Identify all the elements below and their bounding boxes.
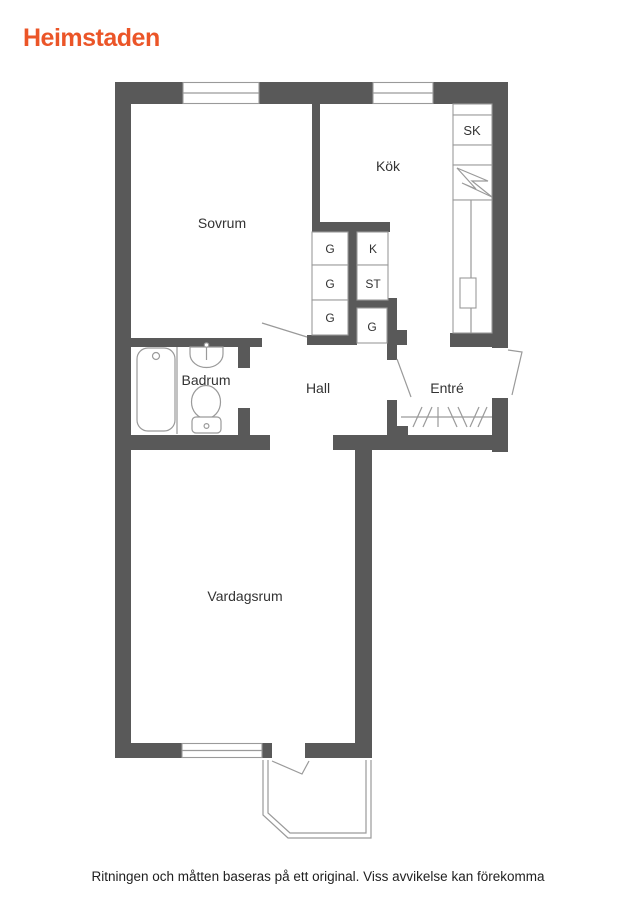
room-label-vardagsrum: Vardagsrum — [207, 588, 282, 604]
wall-top-mid — [259, 82, 373, 104]
bathroom-fixtures — [137, 343, 223, 434]
wall-gcol-bottom — [307, 335, 357, 345]
closet-label-g3: G — [325, 311, 334, 325]
window-bottom — [182, 744, 262, 758]
floor-plan: Sovrum Kök Badrum Hall Entré Vardagsrum … — [0, 0, 636, 900]
closet-label-st: ST — [365, 277, 381, 291]
wall-g4-foot — [397, 330, 407, 345]
closet-label-sk: SK — [463, 123, 481, 138]
wall-partition-foot — [387, 426, 408, 435]
wall-badrum-right-top — [238, 347, 250, 368]
toilet-button — [204, 424, 209, 429]
room-labels: Sovrum Kök Badrum Hall Entré Vardagsrum … — [181, 123, 481, 604]
kitchen-counter — [453, 104, 492, 333]
balcony-door-swing — [272, 761, 309, 774]
room-label-hall: Hall — [306, 380, 330, 396]
closet-label-g2: G — [325, 277, 334, 291]
toilet-icon — [192, 386, 222, 434]
balcony-inner-line — [268, 760, 366, 833]
wall-hall-bottom-left — [131, 435, 270, 450]
toilet-bowl — [192, 386, 221, 419]
front-door-swing — [508, 350, 522, 395]
balcony-outer-line — [263, 760, 371, 838]
room-label-entre: Entré — [430, 380, 464, 396]
entrance-hatch — [401, 407, 492, 427]
wall-hall-bottom-right — [333, 435, 508, 450]
wall-kok-bottom — [312, 222, 390, 232]
bathtub-icon — [137, 348, 175, 431]
wall-vardagsrum-bottom-left — [115, 743, 182, 758]
disclaimer-text: Ritningen och måtten baseras på ett orig… — [0, 869, 636, 884]
wall-vardagsrum-bottom-right — [305, 743, 372, 758]
wall-left — [115, 82, 131, 758]
room-label-kok: Kök — [376, 158, 401, 174]
counter-main — [453, 200, 492, 333]
room-label-badrum: Badrum — [181, 372, 230, 388]
sink-tap — [204, 343, 208, 347]
wall-entre-top — [450, 333, 492, 347]
wall-sovrum-bottom — [131, 338, 262, 347]
room-label-sovrum: Sovrum — [198, 215, 246, 231]
closet-label-k: K — [369, 242, 377, 256]
wall-vardagsrum-right — [355, 450, 372, 758]
counter-top-box — [453, 104, 492, 115]
wall-vardagsrum-bottom-stub — [262, 743, 272, 758]
closet-label-g1: G — [325, 242, 334, 256]
counter-sink-rect — [460, 278, 476, 308]
sovrum-door-swing — [262, 323, 307, 337]
hall-entre-door-swing — [397, 359, 411, 397]
wall-badrum-right-bottom — [238, 408, 250, 435]
wall-g4-right — [387, 298, 397, 360]
balcony-outline — [263, 760, 371, 838]
window-top-right — [373, 83, 433, 104]
wall-right-upper — [492, 82, 508, 348]
bathtub-drain — [153, 353, 160, 360]
wall-wardrobe-mid — [348, 232, 357, 335]
sink-icon — [190, 343, 223, 368]
wall-sovrum-kok — [312, 104, 320, 222]
window-top-left — [183, 83, 259, 104]
counter-box — [453, 145, 492, 165]
closet-label-g4: G — [367, 320, 376, 334]
